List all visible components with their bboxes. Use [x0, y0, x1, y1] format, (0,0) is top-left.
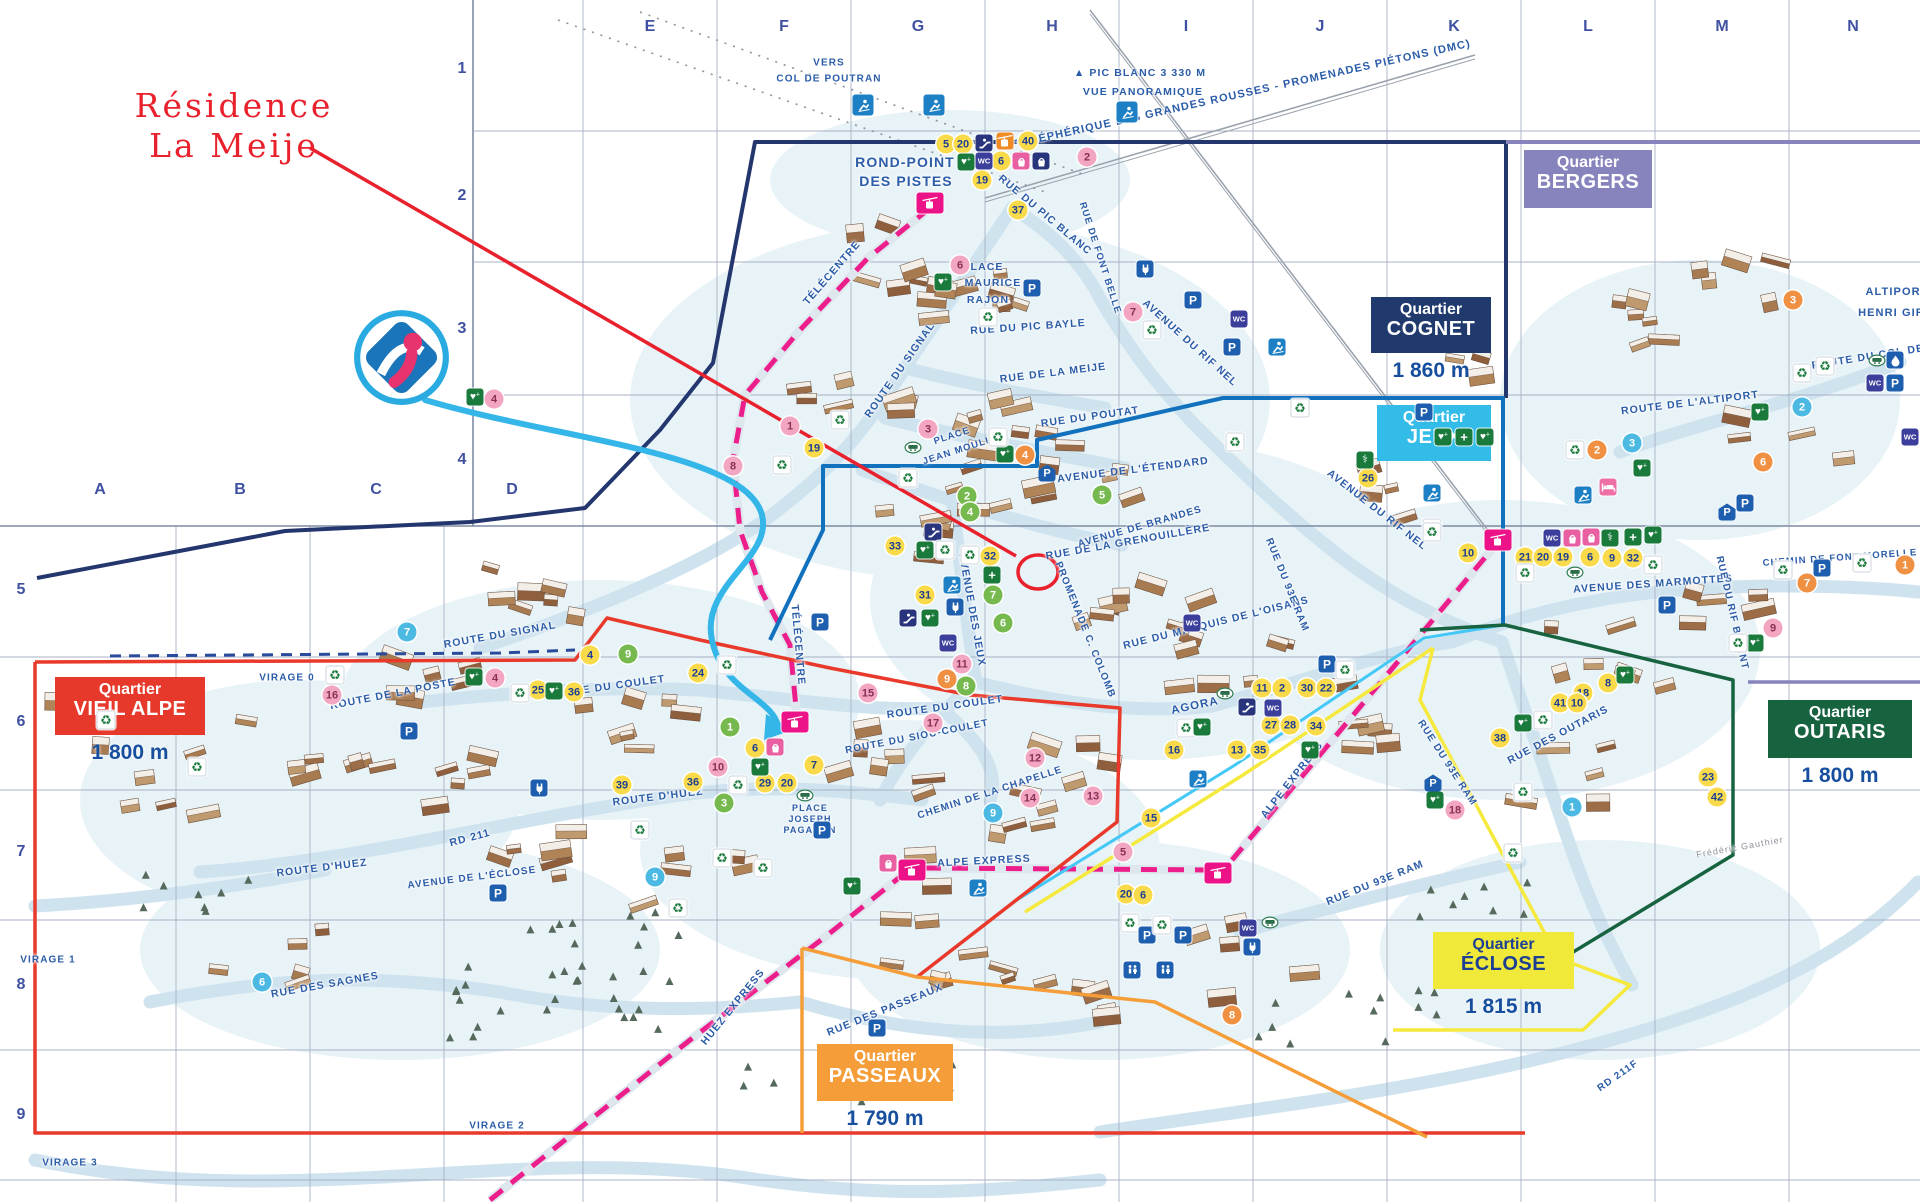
station-icon: [782, 712, 809, 733]
building: [1011, 426, 1029, 439]
parking-icon: P: [814, 822, 831, 839]
quartier-word: Quartier: [1534, 155, 1642, 172]
defib-icon: ♥+: [546, 683, 563, 700]
poi-marker-1: 1: [1563, 798, 1582, 817]
cross-icon: +: [984, 567, 1001, 584]
street-label: VIRAGE 2: [469, 1121, 524, 1132]
bus-icon: [905, 439, 922, 456]
poi-marker-6: 6: [1134, 886, 1153, 905]
recycle-icon: ♻: [631, 821, 650, 840]
parking-icon: P: [490, 885, 507, 902]
quartier-label-passeaux: QuartierPASSEAUX: [817, 1044, 953, 1101]
wc-icon: WC: [1544, 530, 1561, 547]
grid-label-B: B: [234, 481, 246, 499]
resort-logo: [352, 308, 451, 407]
toilets-icon: [1157, 962, 1174, 979]
sledge-icon: [1424, 485, 1441, 502]
bag-pink-icon: [767, 739, 784, 756]
defib-icon: ♥+: [935, 274, 952, 291]
parking-icon: P: [1185, 292, 1202, 309]
poi-marker-27: 27: [1262, 716, 1281, 735]
building: [1384, 483, 1399, 494]
grid-label-3: 3: [458, 320, 467, 338]
street-label: VIRAGE 1: [20, 955, 75, 966]
escalator-icon: [976, 135, 993, 152]
poi-marker-20: 20: [1534, 548, 1553, 567]
building: [797, 393, 817, 404]
poi-marker-15: 15: [859, 684, 878, 703]
poi-marker-3: 3: [919, 420, 938, 439]
recycle-icon: ♻: [1729, 634, 1748, 653]
building: [1679, 616, 1706, 630]
poi-marker-22: 22: [1317, 679, 1336, 698]
recycle-icon: ♻: [1853, 554, 1872, 573]
parking-icon: P: [401, 723, 418, 740]
poi-marker-37: 37: [1009, 201, 1028, 220]
map-title: Résidence La Meije: [116, 86, 352, 166]
defib-icon: ♥+: [1752, 404, 1769, 421]
parking-icon: P: [1659, 597, 1676, 614]
poi-marker-13: 13: [1084, 787, 1103, 806]
grid-label-J: J: [1316, 18, 1325, 36]
poi-marker-11: 11: [953, 655, 972, 674]
quartier-label-outaris: QuartierOUTARIS: [1768, 700, 1912, 758]
bed-icon: [1600, 479, 1617, 496]
poi-marker-7: 7: [398, 623, 417, 642]
poi-marker-10: 10: [1568, 694, 1587, 713]
plug-icon: [1137, 261, 1154, 278]
poi-marker-19: 19: [805, 439, 824, 458]
recycle-icon: ♻: [1423, 523, 1442, 542]
recycle-icon: ♻: [1226, 433, 1245, 452]
poi-marker-36: 36: [684, 773, 703, 792]
poi-marker-30: 30: [1298, 679, 1317, 698]
grid-label-4: 4: [458, 451, 467, 469]
building: [1092, 1007, 1121, 1027]
building: [544, 594, 558, 606]
quartier-name: PASSEAUX: [827, 1066, 943, 1087]
building: [1089, 607, 1114, 621]
quartier-name: BERGERS: [1534, 172, 1642, 193]
poi-marker-39: 39: [613, 776, 632, 795]
parking-icon: P: [1319, 656, 1336, 673]
street-label: MAURICE: [965, 277, 1022, 289]
poi-marker-7: 7: [984, 586, 1003, 605]
building: [1164, 678, 1195, 695]
defib-icon: ♥+: [917, 542, 934, 559]
sledge-icon: [1269, 339, 1286, 356]
quartier-word: Quartier: [1381, 302, 1481, 319]
quartier-name: VIEIL ALPE: [65, 699, 195, 720]
recycle-icon: ♻: [936, 541, 955, 560]
defib-icon: ♥+: [1477, 429, 1494, 446]
bus-icon: [797, 787, 814, 804]
poi-marker-18: 18: [1446, 801, 1465, 820]
grid-label-G: G: [912, 18, 924, 36]
poi-marker-2: 2: [1273, 679, 1292, 698]
building: [1832, 451, 1855, 467]
sledge-icon: [1575, 487, 1592, 504]
building: [1741, 598, 1777, 620]
building: [1376, 733, 1401, 753]
poi-marker-6: 6: [746, 739, 765, 758]
grid-label-K: K: [1448, 18, 1460, 36]
poi-marker-31: 31: [916, 586, 935, 605]
quartier-word: Quartier: [1387, 410, 1481, 427]
station-icon: [899, 860, 926, 881]
recycle-icon: ♻: [831, 411, 850, 430]
poi-marker-6: 6: [951, 256, 970, 275]
poi-marker-1: 1: [721, 718, 740, 737]
recycle-icon: ♻: [1516, 564, 1535, 583]
bag-navy-icon: [1033, 153, 1050, 170]
building: [134, 769, 155, 785]
defib-icon: ♥+: [1645, 527, 1662, 544]
poi-marker-12: 12: [1026, 749, 1045, 768]
recycle-icon: ♻: [1816, 357, 1835, 376]
cross-icon: +: [1456, 429, 1473, 446]
quartier-altitude-outaris: 1 800 m: [1801, 764, 1878, 788]
street-label: VUE PANORAMIQUE: [1083, 86, 1203, 98]
defib-icon: ♥+: [922, 610, 939, 627]
building: [1220, 936, 1240, 952]
building: [915, 914, 940, 929]
gondola-orange-icon: [997, 133, 1014, 150]
building: [1642, 316, 1657, 326]
grid-label-L: L: [1583, 18, 1593, 36]
poi-marker-40: 40: [1019, 132, 1038, 151]
recycle-icon: ♻: [1291, 399, 1310, 418]
quartier-label-cognet: QuartierCOGNET: [1371, 297, 1491, 353]
poi-marker-16: 16: [323, 686, 342, 705]
recycle-icon: ♻: [754, 859, 773, 878]
poi-marker-7: 7: [1124, 303, 1143, 322]
poi-marker-4: 4: [1016, 446, 1035, 465]
building: [421, 796, 450, 816]
poi-marker-6: 6: [1581, 548, 1600, 567]
building: [551, 869, 567, 882]
recycle-icon: ♻: [713, 849, 732, 868]
building: [670, 704, 701, 721]
recycle-icon: ♻: [979, 308, 998, 327]
building: [1076, 735, 1100, 751]
recycle-icon: ♻: [773, 456, 792, 475]
recycle-icon: ♻: [718, 656, 737, 675]
cross-icon: +: [1625, 529, 1642, 546]
plug-icon: [531, 780, 548, 797]
poi-marker-8: 8: [1223, 1006, 1242, 1025]
building: [288, 939, 307, 950]
parking-icon: P: [1175, 927, 1192, 944]
recycle-icon: ♻: [1336, 661, 1355, 680]
quartier-altitude-vieil-alpe: 1 800 m: [91, 741, 168, 765]
recycle-icon: ♻: [1566, 441, 1585, 460]
building: [629, 895, 659, 913]
building: [120, 798, 140, 813]
poi-marker-4: 4: [486, 669, 505, 688]
quartier-name: COGNET: [1381, 319, 1481, 340]
poi-marker-4: 4: [485, 390, 504, 409]
poi-marker-34: 34: [1307, 717, 1326, 736]
quartier-label-vieil-alpe: QuartierVIEIL ALPE: [55, 677, 205, 735]
defib-icon: ♥+: [1747, 635, 1764, 652]
street-label: ALTIPORT: [1866, 286, 1920, 298]
poi-marker-36: 36: [565, 683, 584, 702]
grid-label-2: 2: [458, 187, 467, 205]
building: [887, 403, 915, 419]
recycle-icon: ♻: [669, 899, 688, 918]
grid-label-7: 7: [17, 843, 26, 861]
quartier-word: Quartier: [65, 682, 195, 699]
poi-marker-6: 6: [253, 973, 272, 992]
building: [922, 878, 951, 895]
bus-icon: [1869, 352, 1886, 369]
poi-marker-13: 13: [1228, 741, 1247, 760]
street-label: RAJON: [967, 294, 1009, 306]
street-label: VERS: [813, 58, 845, 69]
defib-icon: ♥+: [752, 759, 769, 776]
recycle-icon: ♻: [1153, 916, 1172, 935]
parking-icon: P: [1887, 375, 1904, 392]
wc-icon: WC: [940, 635, 957, 652]
building: [1544, 620, 1558, 634]
poi-marker-3: 3: [1784, 291, 1803, 310]
poi-marker-1: 1: [1896, 556, 1915, 575]
poi-marker-11: 11: [1253, 679, 1272, 698]
poi-marker-1: 1: [781, 417, 800, 436]
street-label: ROND-POINT: [855, 154, 955, 170]
plug-icon: [1244, 939, 1261, 956]
hiker-icon: [853, 95, 874, 116]
poi-marker-3: 3: [715, 794, 734, 813]
quartier-name: OUTARIS: [1778, 722, 1902, 743]
quartier-word: Quartier: [1778, 705, 1902, 722]
building: [1628, 309, 1644, 320]
building: [1648, 334, 1679, 346]
poi-marker-8: 8: [724, 457, 743, 476]
escalator-icon: [925, 524, 942, 541]
building: [880, 912, 911, 927]
station-icon: [1205, 863, 1232, 884]
poi-marker-9: 9: [938, 670, 957, 689]
grid-label-E: E: [645, 18, 656, 36]
map-title-line2: La Meije: [149, 126, 319, 165]
recycle-icon: ♻: [97, 711, 116, 730]
building: [1055, 440, 1084, 452]
building: [875, 504, 894, 517]
grid-label-D: D: [506, 481, 518, 499]
bus-icon: [1262, 914, 1279, 931]
grid-label-H: H: [1046, 18, 1058, 36]
poi-marker-9: 9: [984, 804, 1003, 823]
poi-marker-8: 8: [957, 677, 976, 696]
recycle-icon: ♻: [1774, 561, 1793, 580]
quartier-word: Quartier: [1443, 937, 1564, 954]
quartier-word: Quartier: [827, 1049, 943, 1066]
defib-icon: ♥+: [1515, 715, 1532, 732]
poi-marker-28: 28: [1281, 716, 1300, 735]
street-label: VIRAGE 0: [259, 673, 314, 684]
building: [488, 591, 516, 606]
escalator-icon: [900, 610, 917, 627]
recycle-icon: ♻: [511, 684, 530, 703]
station-icon: [917, 193, 944, 214]
poi-marker-20: 20: [954, 135, 973, 154]
poi-marker-3: 3: [1623, 434, 1642, 453]
grid-label-F: F: [779, 18, 789, 36]
sledge-icon: [1190, 771, 1207, 788]
recycle-icon: ♻: [1121, 914, 1140, 933]
wc-icon: WC: [1902, 429, 1919, 446]
building: [1748, 589, 1767, 601]
toilets-icon: [1124, 962, 1141, 979]
poi-marker-5: 5: [1114, 843, 1133, 862]
poi-marker-14: 14: [1021, 789, 1040, 808]
building: [506, 844, 521, 854]
recycle-icon: ♻: [1534, 711, 1553, 730]
recycle-icon: ♻: [899, 469, 918, 488]
parking-icon: P: [869, 1020, 886, 1037]
building: [869, 757, 888, 776]
poi-marker-9: 9: [1764, 619, 1783, 638]
quartier-label-eclose: QuartierÉCLOSE: [1433, 932, 1574, 989]
building: [566, 607, 585, 626]
poi-marker-6: 6: [1754, 453, 1773, 472]
parking-icon: P: [1224, 339, 1241, 356]
recycle-icon: ♻: [188, 758, 207, 777]
quartier-name: ÉCLOSE: [1443, 954, 1564, 975]
recycle-icon: ♻: [961, 546, 980, 565]
poi-marker-23: 23: [1699, 768, 1718, 787]
building: [624, 744, 654, 753]
building: [1207, 987, 1237, 1007]
resort-logo-graphic: [352, 308, 451, 407]
defib-icon: ♥+: [997, 446, 1014, 463]
building: [664, 846, 685, 862]
defib-icon: ♥+: [1194, 719, 1211, 736]
poi-marker-9: 9: [1603, 549, 1622, 568]
building: [287, 760, 306, 775]
poi-marker-33: 33: [886, 537, 905, 556]
quartier-label-bergers: QuartierBERGERS: [1524, 150, 1652, 208]
street-label: ▲ PIC BLANC 3 330 M: [1074, 67, 1206, 79]
parking-icon: P: [1024, 280, 1041, 297]
poi-marker-4: 4: [961, 503, 980, 522]
grid-label-9: 9: [17, 1106, 26, 1124]
poi-marker-2: 2: [1078, 148, 1097, 167]
poi-marker-10: 10: [709, 758, 728, 777]
poi-marker-19: 19: [973, 171, 992, 190]
parking-icon: P: [812, 614, 829, 631]
wc-icon: WC: [1265, 700, 1282, 717]
xcski-icon: [924, 95, 945, 116]
building: [481, 561, 499, 575]
poi-marker-7: 7: [1798, 574, 1817, 593]
poi-marker-16: 16: [1165, 741, 1184, 760]
recycle-icon: ♻: [989, 428, 1008, 447]
poi-marker-38: 38: [1491, 729, 1510, 748]
grid-label-C: C: [370, 481, 382, 499]
poi-marker-10: 10: [1459, 544, 1478, 563]
poi-marker-6: 6: [994, 614, 1013, 633]
poi-marker-29: 29: [756, 774, 775, 793]
poi-marker-15: 15: [1142, 809, 1161, 828]
building: [1691, 261, 1709, 279]
building: [315, 923, 329, 936]
quartier-altitude-passeaux: 1 790 m: [846, 1107, 923, 1131]
wc-icon: WC: [1867, 375, 1884, 392]
defib-icon: ♥+: [1302, 742, 1319, 759]
street-label: DES PISTES: [859, 173, 952, 189]
bag-pink-icon: [1564, 530, 1581, 547]
recycle-icon: ♻: [326, 666, 345, 685]
defib-icon: ♥+: [958, 154, 975, 171]
drop-icon: [1887, 352, 1904, 369]
defib-icon: ♥+: [1617, 667, 1634, 684]
street-label: COL DE POUTRAN: [776, 74, 881, 85]
wc-icon: WC: [976, 153, 993, 170]
snowboard-icon: [1117, 102, 1138, 123]
building: [304, 753, 324, 764]
poi-marker-4: 4: [581, 646, 600, 665]
poi-marker-17: 17: [924, 714, 943, 733]
wc-icon: WC: [1231, 311, 1248, 328]
bus-icon: [1217, 685, 1234, 702]
bag-pink-icon: [880, 855, 897, 872]
recycle-icon: ♻: [1514, 783, 1533, 802]
poi-marker-26: 26: [1359, 469, 1378, 488]
steth-icon: ⚕: [1357, 452, 1374, 469]
defib-icon: ♥+: [467, 389, 484, 406]
defib-icon: ♥+: [1634, 460, 1651, 477]
wc-icon: WC: [1184, 615, 1201, 632]
poi-marker-5: 5: [1093, 486, 1112, 505]
sledge-icon: [970, 880, 987, 897]
street-label: VIRAGE 3: [42, 1158, 97, 1169]
grid-label-N: N: [1847, 18, 1859, 36]
village-map[interactable]: Résidence La Meije ABCDEFGHIJKLMN1234567…: [0, 0, 1920, 1202]
poi-marker-32: 32: [1624, 549, 1643, 568]
steth-icon: ⚕: [1602, 530, 1619, 547]
poi-marker-9: 9: [646, 868, 665, 887]
building: [1289, 965, 1320, 982]
grid-label-A: A: [94, 481, 106, 499]
poi-marker-35: 35: [1251, 741, 1270, 760]
bus-icon: [1567, 564, 1584, 581]
station-icon: [1485, 530, 1512, 551]
building: [1612, 295, 1627, 309]
poi-marker-32: 32: [981, 547, 1000, 566]
bag-pink-icon: [1583, 529, 1600, 546]
plug-icon: [947, 599, 964, 616]
quartier-altitude-cognet: 1 860 m: [1392, 359, 1469, 383]
defib-icon: ♥+: [466, 669, 483, 686]
poi-marker-8: 8: [1599, 674, 1618, 693]
defib-icon: ♥+: [844, 878, 861, 895]
recycle-icon: ♻: [1793, 364, 1812, 383]
defib-icon: ♥+: [1435, 429, 1452, 446]
street-label: HENRI GIRAUD: [1858, 307, 1920, 319]
grid-label-5: 5: [17, 581, 26, 599]
recycle-icon: ♻: [1644, 556, 1663, 575]
poi-marker-2: 2: [1793, 398, 1812, 417]
poi-marker-7: 7: [805, 756, 824, 775]
poi-marker-6: 6: [992, 152, 1011, 171]
quartier-altitude-eclose: 1 815 m: [1465, 995, 1542, 1019]
grid-label-8: 8: [17, 976, 26, 994]
escalator-icon: [1239, 699, 1256, 716]
defib-icon: ♥+: [1427, 792, 1444, 809]
